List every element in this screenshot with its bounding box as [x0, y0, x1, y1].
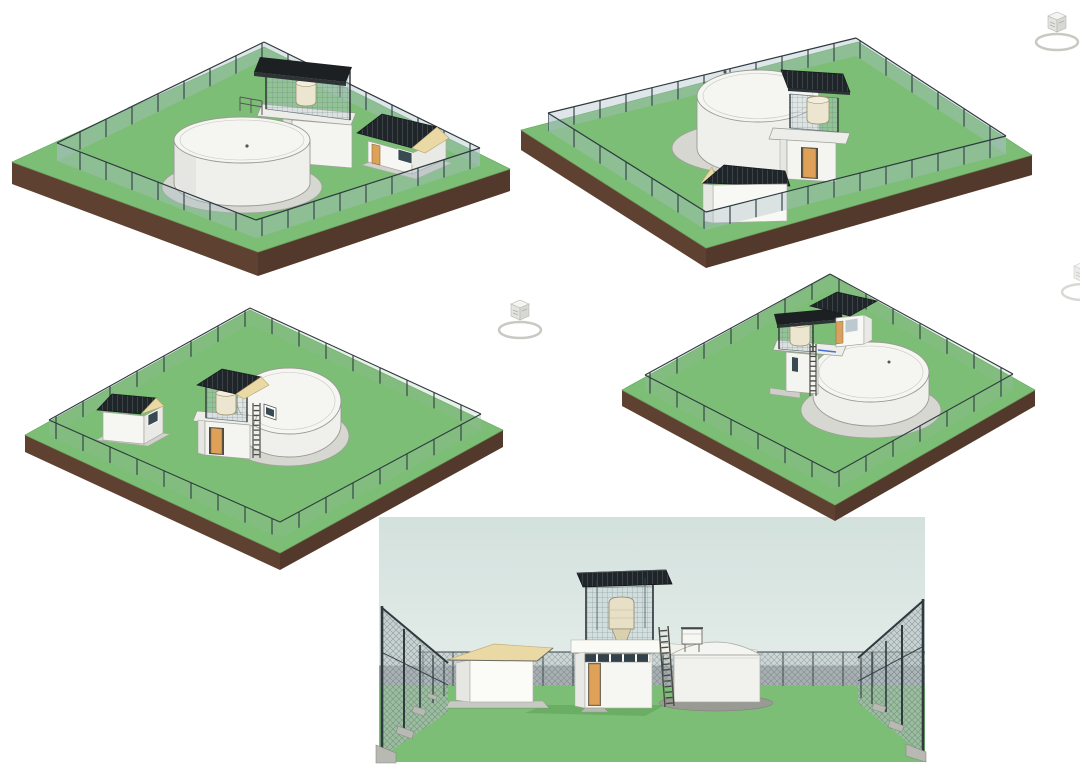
- view-3d-5: [376, 517, 926, 763]
- door-step: [581, 708, 608, 712]
- water-tank: [174, 117, 310, 206]
- house-door: [372, 144, 380, 165]
- tower-door: [803, 148, 816, 178]
- house-window: [845, 318, 858, 333]
- clerestory-windows: [585, 654, 650, 662]
- guard-house: [96, 394, 170, 446]
- viewcube-icon[interactable]: [1062, 262, 1080, 300]
- tank-vent: [723, 70, 726, 73]
- platform-band: [571, 640, 660, 653]
- view-3d-2: [521, 38, 1032, 268]
- sheet-canvas: [0, 0, 1080, 769]
- tank-vent: [888, 361, 891, 364]
- view-3d-1: [12, 42, 510, 276]
- viewcube-icon[interactable]: [1036, 12, 1078, 50]
- tower-window: [792, 357, 798, 372]
- tank-vent: [245, 144, 248, 147]
- house-door: [836, 321, 843, 344]
- view-3d-4: [622, 274, 1035, 521]
- tower-door: [589, 664, 600, 705]
- viewcube-icon[interactable]: [499, 300, 541, 338]
- tower-door: [211, 428, 222, 454]
